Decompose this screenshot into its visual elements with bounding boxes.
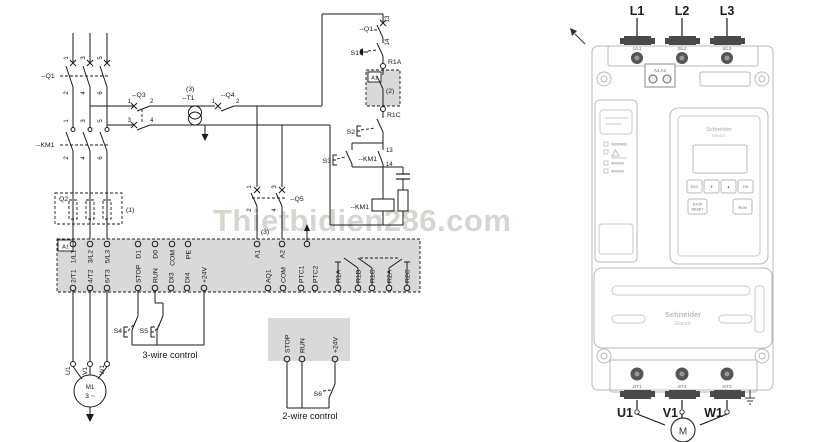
svg-text:5/L3: 5/L3 <box>105 250 112 263</box>
svg-text:4: 4 <box>81 156 87 160</box>
vent-slot <box>612 315 645 323</box>
vent-slot <box>612 286 750 295</box>
svg-text:6/T3: 6/T3 <box>722 384 732 389</box>
svg-text:RESET: RESET <box>692 208 705 212</box>
r1c-label: R1C <box>387 112 401 119</box>
breaker-q3: --Q3 1 2 3 4 <box>128 92 154 130</box>
svg-text:DI4: DI4 <box>185 272 192 283</box>
input-terminal-blocks <box>620 36 745 45</box>
device-input-lines: L1 L2 L3 1/L1 3/L2 5/L3 <box>620 4 745 64</box>
svg-text:R2A: R2A <box>387 269 394 283</box>
svg-text:COM: COM <box>170 250 177 266</box>
control-transformer-t1: (3) --T1 <box>182 86 209 141</box>
svg-text:1/L1: 1/L1 <box>633 46 642 51</box>
s3-label: S3 <box>323 158 332 165</box>
altistart-badge <box>600 110 632 134</box>
s1-pushbutton: S1 <box>351 43 383 64</box>
svg-text:4: 4 <box>81 91 87 95</box>
l1-label: L1 <box>630 4 645 18</box>
svg-text:13: 13 <box>385 15 391 22</box>
svg-text:1: 1 <box>64 56 70 60</box>
q2-note: (1) <box>126 207 134 214</box>
q2-label: Q2 <box>59 196 68 203</box>
svg-text:R1A: R1A <box>336 269 343 283</box>
wiring-diagram-page: Thietbidien286.com --Q1 1 2 3 4 <box>0 0 828 442</box>
svg-text:PTC1: PTC1 <box>299 265 306 283</box>
svg-text:2: 2 <box>64 91 70 95</box>
s3-km1aux-branch: S3 --KM1 13 14 <box>323 143 394 168</box>
svg-text:▲: ▲ <box>727 185 731 189</box>
pe-clip-arrow <box>570 28 585 44</box>
w1-label: W1 <box>704 406 723 420</box>
svg-text:6: 6 <box>98 91 104 95</box>
s2-pushbutton: S2 <box>347 112 383 144</box>
svg-text:PE: PE <box>186 250 193 260</box>
svg-text:R2C: R2C <box>405 269 412 283</box>
keypad-panel: Schneider Electric ESC ▼ ▲ OK STOP RESET… <box>670 108 768 264</box>
svg-text:STOP: STOP <box>693 203 703 207</box>
s2-label: S2 <box>347 129 356 136</box>
l2-label: L2 <box>675 4 690 18</box>
svg-text:U1: U1 <box>65 366 72 375</box>
ground-arrow <box>202 134 209 141</box>
motor-name: M1 <box>86 385 95 391</box>
side-slot <box>755 286 764 332</box>
svg-text:D0: D0 <box>153 250 160 259</box>
svg-text:2/T1: 2/T1 <box>71 269 78 283</box>
svg-text:1: 1 <box>212 99 216 105</box>
output-screws <box>631 368 734 381</box>
stop-reset-button <box>688 199 707 214</box>
vent-slot <box>719 315 752 323</box>
svg-text:▼: ▼ <box>710 185 714 189</box>
s6-label: S6 <box>314 391 323 398</box>
r1a-label: R1A <box>388 59 402 66</box>
keypad-logo-2: Electric <box>712 133 726 138</box>
fuse-box-q2: Q2 (1) <box>55 193 134 224</box>
three-wire-control: S4 S5 3-wire control <box>114 291 204 360</box>
device-top-slot <box>700 72 750 86</box>
t1-label: --T1 <box>182 95 195 102</box>
control-circuit: 13 --Q1 14 S1 R1A <box>322 14 410 225</box>
q5-label: --Q5 <box>290 196 304 203</box>
svg-text:1: 1 <box>247 185 253 189</box>
two-wire-caption: 2-wire control <box>282 411 337 421</box>
v1-label: V1 <box>663 406 678 420</box>
device-output-lines: 2/T1 4/T2 6/T3 U1 V1 W1 <box>610 360 757 442</box>
svg-text:2/T1: 2/T1 <box>632 384 642 389</box>
svg-text:3: 3 <box>81 119 87 123</box>
svg-text:6/T3: 6/T3 <box>105 269 112 283</box>
motor-phase: 3 ~ <box>85 393 95 400</box>
svg-text:V1: V1 <box>82 366 89 375</box>
svg-text:6: 6 <box>98 156 104 160</box>
breaker-q4: --Q4 1 2 <box>212 92 240 111</box>
q1-aux-contact: 13 --Q1 14 <box>359 14 391 45</box>
svg-text:3: 3 <box>128 118 132 124</box>
svg-text:4: 4 <box>150 118 154 124</box>
svg-text:5: 5 <box>98 119 104 123</box>
svg-text:2: 2 <box>236 99 240 105</box>
device-left-column <box>595 100 637 262</box>
svg-text:STOP: STOP <box>136 264 143 283</box>
svg-text:3: 3 <box>81 56 87 60</box>
device-body <box>592 46 773 390</box>
aux-terminal-labels: A1 A2 <box>654 68 667 73</box>
breaker-q1: --Q1 1 2 3 4 5 6 <box>41 56 110 95</box>
svg-text:DI3: DI3 <box>169 272 176 283</box>
q1-pole-1: 1 2 <box>64 56 76 95</box>
s4-label: S4 <box>114 328 123 335</box>
s1-label: S1 <box>351 50 360 57</box>
svg-text:1: 1 <box>64 119 70 123</box>
svg-text:1: 1 <box>128 99 132 105</box>
q1-aux-label: --Q1 <box>359 26 373 33</box>
brand-logo-1: Schneider <box>665 310 701 319</box>
svg-text:4/T2: 4/T2 <box>88 269 95 283</box>
svg-text:13: 13 <box>386 148 393 154</box>
svg-text:2: 2 <box>150 99 154 105</box>
svg-text:ESC: ESC <box>691 185 699 189</box>
svg-text:5/L3: 5/L3 <box>723 46 732 51</box>
strip-corner-label: A1 <box>62 245 69 251</box>
svg-text:AQ1: AQ1 <box>266 269 273 283</box>
option-slot <box>599 224 633 254</box>
svg-text:14: 14 <box>385 38 391 45</box>
svg-text:3/L2: 3/L2 <box>678 46 687 51</box>
diagram-canvas: Thietbidien286.com --Q1 1 2 3 4 <box>0 0 828 442</box>
motor-letter: M <box>679 427 687 438</box>
km1-coil-label: --KM1 <box>350 204 369 211</box>
svg-text:RUN: RUN <box>738 206 746 210</box>
motor-ground-arrow <box>86 414 94 422</box>
svg-text:D1: D1 <box>136 250 143 259</box>
svg-text:R1B: R1B <box>356 269 363 283</box>
u1-label: U1 <box>617 406 633 420</box>
t1-note: (3) <box>186 86 194 93</box>
q4-label: --Q4 <box>221 92 235 99</box>
q3-label: --Q3 <box>132 92 146 99</box>
device-illustration: L1 L2 L3 1/L1 3/L2 5/L3 A1 A2 <box>570 4 773 442</box>
svg-text:A2: A2 <box>280 250 287 259</box>
q1-pole-3: 5 6 <box>98 56 110 95</box>
three-wire-caption: 3-wire control <box>142 350 197 360</box>
svg-text:+24V: +24V <box>202 266 209 283</box>
svg-text:1/L1: 1/L1 <box>71 250 78 263</box>
svg-text:4/T2: 4/T2 <box>677 384 687 389</box>
svg-text:COM: COM <box>281 267 288 283</box>
svg-text:3: 3 <box>272 185 278 189</box>
svg-text:RUN: RUN <box>300 338 307 353</box>
two-wire-control: STOP RUN +24V S6 2-wire control <box>268 318 350 421</box>
brand-logo-2: Electric <box>675 321 692 327</box>
svg-text:5: 5 <box>98 56 104 60</box>
s5-label: S5 <box>140 328 149 335</box>
svg-text:STOP: STOP <box>285 334 292 353</box>
svg-text:PTC2: PTC2 <box>313 265 320 283</box>
fault-relay-block: R1A A1 (2) R1C <box>366 59 402 119</box>
km1-label: --KM1 <box>36 142 55 149</box>
note2: (2) <box>386 88 394 95</box>
svg-text:R1C: R1C <box>370 269 377 283</box>
svg-text:RUN: RUN <box>153 268 160 283</box>
status-leds <box>604 142 627 173</box>
q5-note: (3) <box>261 229 269 236</box>
svg-text:2: 2 <box>64 156 70 160</box>
input-screws <box>631 52 733 64</box>
heatsink-section: Schneider Electric <box>594 268 772 348</box>
motor-m1: U1 V1 W1 M1 3 ~ <box>65 291 110 422</box>
svg-text:A1: A1 <box>255 250 262 259</box>
keypad-display <box>693 145 747 173</box>
svg-text:+24V: +24V <box>333 336 340 353</box>
km1-aux-label: --KM1 <box>358 156 377 163</box>
q1-label: --Q1 <box>41 73 55 80</box>
output-terminal-blocks <box>620 390 745 399</box>
l3-label: L3 <box>720 4 735 18</box>
control-supply-lines <box>90 106 330 125</box>
aux-terminal-block: A1 A2 <box>645 64 675 87</box>
svg-text:OK: OK <box>743 185 749 189</box>
keypad-buttons: ESC ▼ ▲ OK STOP RESET RUN <box>687 180 753 214</box>
svg-text:3/L2: 3/L2 <box>88 250 95 263</box>
q1-pole-2: 3 4 <box>81 56 93 95</box>
